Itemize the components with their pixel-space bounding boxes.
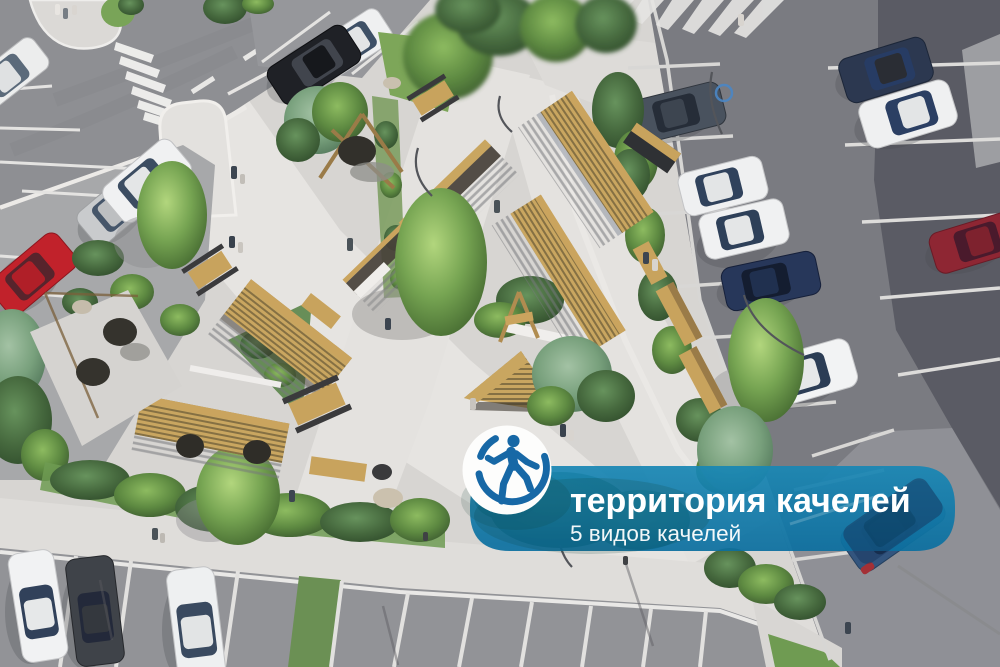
svg-text:территория качелей: территория качелей [570, 482, 911, 520]
svg-text:5 видов качелей: 5 видов качелей [570, 521, 741, 546]
